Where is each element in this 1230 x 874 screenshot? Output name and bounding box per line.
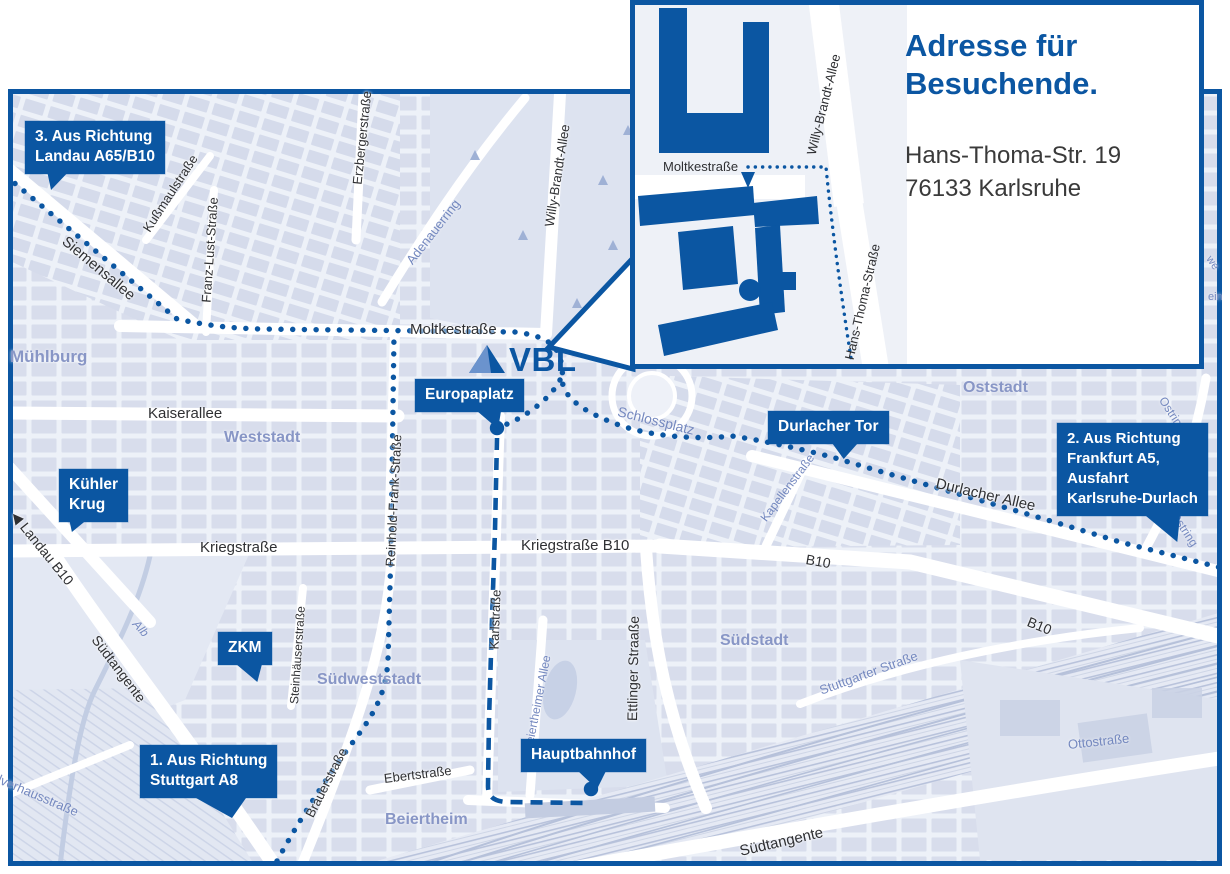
callout-stuttgart-line2: Stuttgart A8 (150, 771, 267, 791)
callout-zkm-line1: ZKM (228, 638, 262, 658)
callout-frankfurt-line2: Frankfurt A5, (1067, 449, 1198, 469)
area-label-suedweststadt: Südweststadt (317, 672, 421, 688)
street-label-kriegstrasse: Kriegstraße (200, 540, 278, 555)
callout-europaplatz: Europaplatz (415, 379, 524, 412)
inset-title-line2: Besuchende. (905, 65, 1098, 103)
area-label-oststadt: Oststadt (963, 380, 1028, 396)
inset-title: Adresse für Besuchende. (905, 27, 1098, 103)
inset-address-line1: Hans-Thoma-Str. 19 (905, 139, 1121, 172)
callout-kuehler-krug-line1: Kühler (69, 475, 118, 495)
street-label-kriegstrasse-b10: Kriegstraße B10 (521, 538, 629, 553)
karlsruhe-directions-map: Siemensallee Kußmaulstraße Franz-Lust-St… (0, 0, 1230, 874)
street-label-fragment-ein: ein (1208, 292, 1223, 303)
area-label-beiertheim: Beiertheim (385, 812, 468, 828)
inset-title-line1: Adresse für (905, 27, 1098, 65)
callout-stuttgart-line1: 1. Aus Richtung (150, 751, 267, 771)
street-label-karlstrasse: Karlstraße (488, 589, 503, 649)
callout-durlacher-tor: Durlacher Tor (768, 411, 889, 444)
callout-frankfurt-line1: 2. Aus Richtung (1067, 429, 1198, 449)
inset-address-line2: 76133 Karlsruhe (905, 172, 1121, 205)
callout-durlacher-tor-line1: Durlacher Tor (778, 417, 879, 437)
visitor-address-inset: Moltkestraße Willy-Brandt-Allee Hans-Tho… (630, 0, 1204, 369)
callout-landau-line1: 3. Aus Richtung (35, 127, 155, 147)
callout-landau: 3. Aus Richtung Landau A65/B10 (25, 121, 165, 174)
vbl-logo-text: VBL (509, 345, 577, 375)
street-label-kaiserallee: Kaiserallee (148, 406, 222, 421)
callout-europaplatz-line1: Europaplatz (425, 385, 514, 405)
vbl-logo: VBL (463, 343, 577, 375)
callout-zkm: ZKM (218, 632, 272, 665)
callout-frankfurt: 2. Aus Richtung Frankfurt A5, Ausfahrt K… (1057, 423, 1208, 516)
callout-frankfurt-line4: Karlsruhe-Durlach (1067, 489, 1198, 509)
callout-kuehler-krug-line2: Krug (69, 495, 118, 515)
street-label-ettlinger-strasse: Ettlinger Straaße (625, 616, 641, 721)
area-label-suedstadt: Südstadt (720, 633, 788, 649)
area-label-weststadt: Weststadt (224, 430, 300, 446)
callout-hauptbahnhof-line1: Hauptbahnhof (531, 745, 636, 765)
vbl-triangle-icon (463, 343, 507, 375)
callout-hauptbahnhof: Hauptbahnhof (521, 739, 646, 772)
area-label-muehlburg: Mühlburg (10, 348, 87, 365)
callout-frankfurt-line3: Ausfahrt (1067, 469, 1198, 489)
street-label-b10-mid: B10 (805, 552, 832, 570)
inset-street-label-moltkestrasse: Moltkestraße (663, 160, 738, 173)
callout-landau-line2: Landau A65/B10 (35, 147, 155, 167)
inset-address: Hans-Thoma-Str. 19 76133 Karlsruhe (905, 139, 1121, 205)
callout-stuttgart: 1. Aus Richtung Stuttgart A8 (140, 745, 277, 798)
street-label-moltkestrasse: Moltkestraße (410, 322, 497, 337)
